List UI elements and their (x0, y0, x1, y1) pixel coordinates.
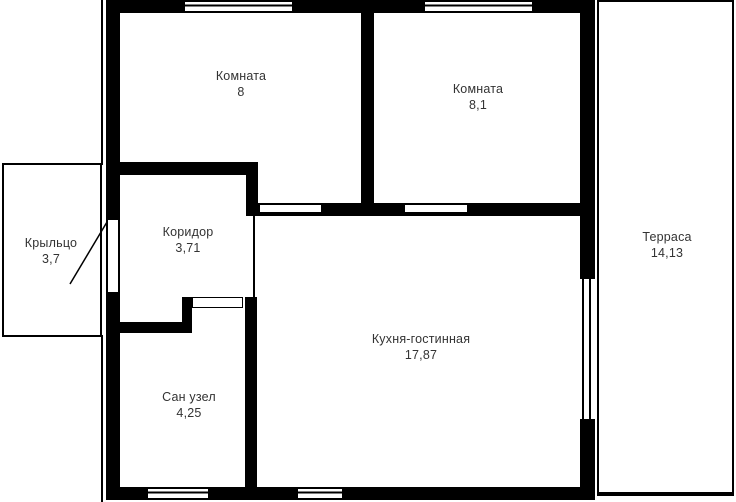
door-bathroom (192, 297, 243, 308)
room2-area: 8,1 (398, 98, 558, 114)
label-bathroom: Сан узел 4,25 (109, 390, 269, 421)
left-edge-line-bottom (101, 335, 103, 502)
kitchen-area: 17,87 (341, 348, 501, 364)
label-corridor: Коридор 3,71 (108, 225, 268, 256)
room1-name: Комната (161, 69, 321, 85)
floor-plan: Комната 8 Комната 8,1 Крыльцо 3,7 Коридо… (0, 0, 736, 502)
terrace-area: 14,13 (587, 246, 736, 262)
label-kitchen: Кухня-гостинная 17,87 (341, 332, 501, 363)
window-kitchen-bottom (298, 489, 342, 498)
window-room2-top (425, 2, 532, 11)
terrace-bottom-line (597, 492, 734, 496)
wall-partition-rooms (361, 13, 374, 203)
room1-area: 8 (161, 85, 321, 101)
door-room2 (404, 204, 468, 213)
left-edge-line-top (101, 0, 103, 165)
corridor-area: 3,71 (108, 241, 268, 257)
sliding-door-leaf-left (582, 279, 584, 419)
sliding-door-leaf-right (589, 279, 591, 419)
label-room1: Комната 8 (161, 69, 321, 100)
terrace-top-line (597, 0, 734, 2)
wall-bathroom-top (120, 322, 192, 333)
room2-name: Комната (398, 82, 558, 98)
door-room1 (259, 204, 322, 213)
kitchen-name: Кухня-гостинная (341, 332, 501, 348)
terrace-name: Терраса (587, 230, 736, 246)
window-room1-top (185, 2, 292, 11)
corridor-name: Коридор (108, 225, 268, 241)
bathroom-name: Сан узел (109, 390, 269, 406)
door-terrace-sliding (580, 279, 595, 419)
window-bathroom-bottom (148, 489, 208, 498)
label-room2: Комната 8,1 (398, 82, 558, 113)
bathroom-area: 4,25 (109, 406, 269, 422)
wall-room1-bottom (120, 162, 258, 175)
label-terrace: Терраса 14,13 (587, 230, 736, 261)
